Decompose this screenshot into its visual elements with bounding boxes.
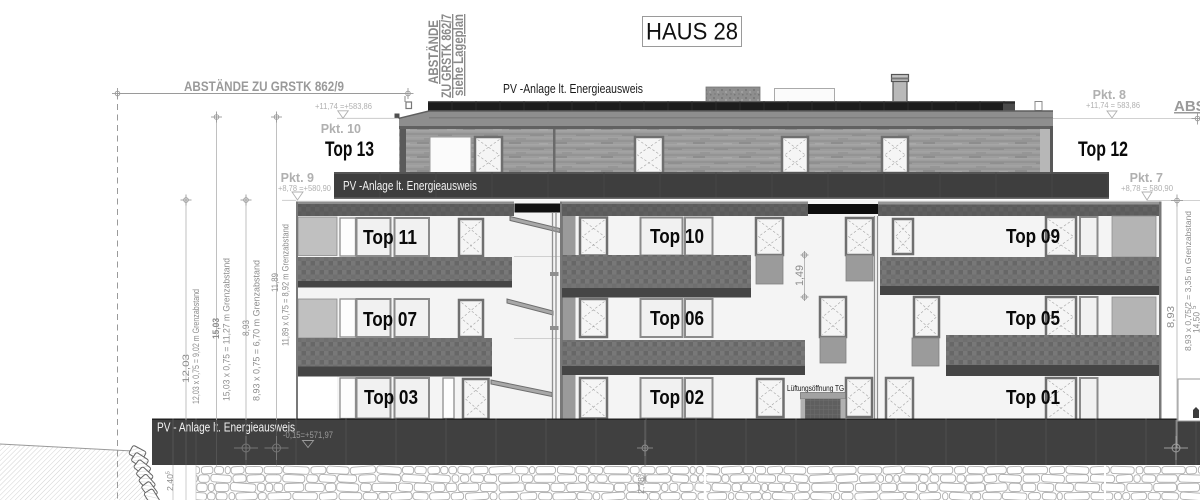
svg-text:PV -Anlage lt. Energieausweis: PV -Anlage lt. Energieausweis (343, 178, 477, 193)
svg-text:+8,78 = 580,90: +8,78 = 580,90 (1121, 183, 1173, 193)
svg-text:15,03: 15,03 (211, 318, 222, 339)
svg-text:Top 05: Top 05 (1006, 307, 1060, 330)
svg-text:Top 03: Top 03 (364, 386, 418, 409)
svg-text:1,49: 1,49 (794, 265, 806, 286)
svg-text:ABSTÄNDE ZU GRSTK 862/9: ABSTÄNDE ZU GRSTK 862/9 (184, 78, 344, 94)
svg-text:+11,74 =+583,86: +11,74 =+583,86 (315, 101, 372, 111)
svg-text:Top 06: Top 06 (650, 307, 704, 330)
svg-text:Top 07: Top 07 (363, 308, 417, 331)
svg-text:11,89: 11,89 (270, 273, 281, 292)
svg-text:2,78: 2,78 (636, 477, 646, 494)
svg-text:HAUS 28: HAUS 28 (646, 19, 738, 46)
svg-text:PV - Anlage lt. Energieausweis: PV - Anlage lt. Energieausweis (157, 421, 295, 435)
svg-text:Pkt. 10: Pkt. 10 (321, 122, 361, 136)
svg-text:8,93 x 0,75 = 6,70 m Grenzabst: 8,93 x 0,75 = 6,70 m Grenzabstand (252, 260, 262, 401)
svg-text:8,93: 8,93 (1166, 306, 1177, 328)
svg-text:Top 11: Top 11 (363, 226, 417, 249)
svg-text:5: 5 (166, 471, 172, 474)
svg-text:15,03 x 0,75 = 11,27 m Grenzab: 15,03 x 0,75 = 11,27 m Grenzabstand (222, 258, 232, 401)
svg-text:11,89 x 0,75 = 8,92 m Grenzabs: 11,89 x 0,75 = 8,92 m Grenzabstand (281, 224, 291, 346)
svg-text:+8,78 =+580,90: +8,78 =+580,90 (278, 183, 331, 193)
svg-text:+11,74 = 583,86: +11,74 = 583,86 (1086, 100, 1140, 110)
svg-text:ABSTÄNDE: ABSTÄNDE (1174, 98, 1200, 115)
svg-text:2,40: 2,40 (165, 474, 175, 491)
svg-text:Top 10: Top 10 (650, 225, 704, 248)
svg-text:siehe Lageplan: siehe Lageplan (451, 14, 466, 96)
svg-text:5: 5 (637, 474, 643, 477)
svg-text:Top 01: Top 01 (1006, 386, 1060, 409)
svg-text:Top 02: Top 02 (650, 386, 704, 409)
svg-text:PV -Anlage lt. Energieausweis: PV -Anlage lt. Energieausweis (503, 82, 643, 96)
svg-text:Top 09: Top 09 (1006, 225, 1060, 248)
svg-text:8,93: 8,93 (241, 320, 252, 336)
svg-text:12,03 x 0,75 = 9,02 m Grenzabs: 12,03 x 0,75 = 9,02 m Grenzabstand (191, 289, 201, 404)
svg-text:Top 13: Top 13 (325, 138, 374, 161)
svg-text:Top 12: Top 12 (1078, 138, 1128, 161)
svg-text:14,50: 14,50 (1192, 312, 1200, 333)
svg-text:Lüftungsöffnung TG: Lüftungsöffnung TG (787, 384, 844, 393)
svg-text:-0,15=+571,97: -0,15=+571,97 (283, 430, 333, 440)
